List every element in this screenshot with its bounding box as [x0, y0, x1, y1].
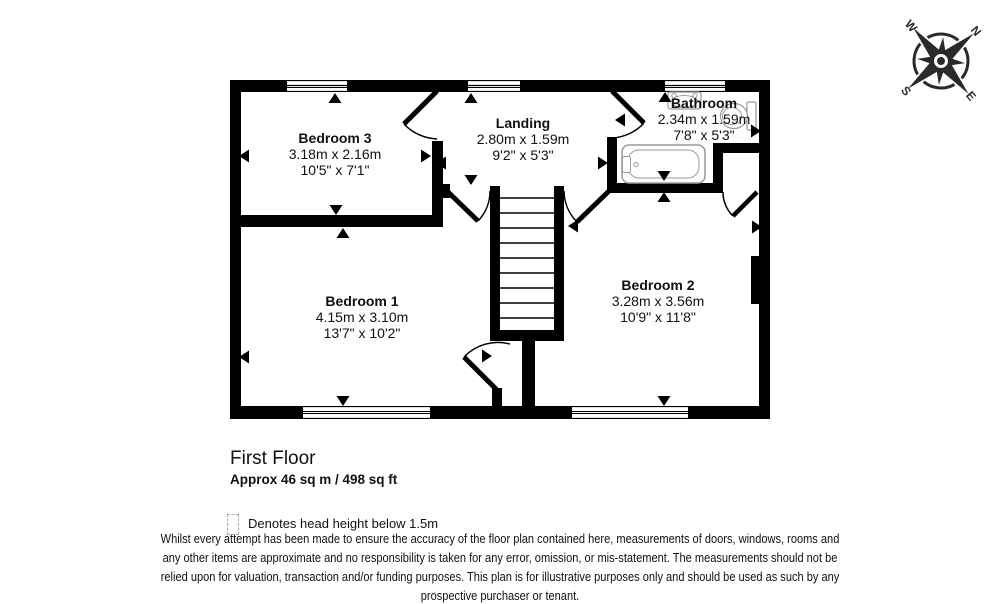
disclaimer: Whilst every attempt has been made to en…	[0, 529, 1000, 604]
room-dim-metric: 2.34m x 1.59m	[658, 111, 751, 127]
stairs-left-wall	[490, 186, 500, 341]
door-hinge-stub	[492, 388, 502, 406]
room-dim-imperial: 10'5" x 7'1"	[289, 162, 382, 178]
room-dim-metric: 2.80m x 1.59m	[477, 131, 570, 147]
floor-area: Approx 46 sq m / 498 sq ft	[230, 472, 397, 487]
measure-arrow-icon	[330, 205, 343, 215]
room-dim-imperial: 13'7" x 10'2"	[316, 325, 409, 341]
measure-arrow-icon	[329, 93, 342, 103]
bedroom3-bottom-wall	[230, 215, 443, 227]
door-bedroom2	[564, 191, 609, 222]
floor-title: First Floor	[230, 448, 316, 470]
measure-arrow-icon	[482, 350, 492, 363]
measure-arrow-icon	[658, 192, 671, 202]
door-bathroom	[612, 91, 644, 138]
room-label-bathroom: Bathroom 2.34m x 1.59m 7'8" x 5'3"	[658, 95, 751, 143]
window	[287, 80, 347, 92]
staircase-treads	[500, 198, 554, 318]
window	[572, 406, 688, 419]
measure-arrow-icon	[615, 114, 625, 127]
compass-south-label: S	[898, 83, 914, 98]
room-dim-metric: 3.18m x 2.16m	[289, 146, 382, 162]
measure-arrow-icon	[465, 175, 478, 185]
stairs-bottom-wall	[490, 330, 564, 341]
door-cupboard	[723, 192, 757, 216]
measure-arrow-icon	[658, 396, 671, 406]
room-name: Bedroom 3	[289, 130, 382, 146]
measure-arrow-icon	[421, 150, 431, 163]
room-label-bedroom2: Bedroom 2 3.28m x 3.56m 10'9" x 11'8"	[612, 277, 705, 325]
measure-arrow-icon	[568, 220, 578, 233]
disclaimer-line: any other items are approximate and no r…	[75, 548, 925, 567]
bathroom-left-wall	[607, 137, 617, 190]
room-name: Bedroom 1	[316, 293, 409, 309]
disclaimer-line: prospective purchaser or tenant.	[75, 586, 925, 604]
window	[665, 80, 725, 92]
measure-arrow-icon	[337, 396, 350, 406]
room-name: Bedroom 2	[612, 277, 705, 293]
measure-arrow-icon	[465, 93, 478, 103]
measure-arrow-icon	[598, 157, 608, 170]
stairs-right-wall	[554, 186, 564, 341]
door-bedroom3	[404, 91, 437, 139]
window	[303, 406, 430, 419]
room-dim-metric: 4.15m x 3.10m	[316, 309, 409, 325]
bedroom3-right-wall	[432, 141, 443, 227]
floor-plan-svg: N E S W	[0, 0, 1000, 604]
cupboard-left-wall	[713, 143, 723, 193]
room-dim-imperial: 7'8" x 5'3"	[658, 127, 751, 143]
door-bedroom1-bottom	[464, 342, 510, 390]
room-label-bedroom1: Bedroom 1 4.15m x 3.10m 13'7" x 10'2"	[316, 293, 409, 341]
room-dim-imperial: 10'9" x 11'8"	[612, 309, 705, 325]
disclaimer-line: relied upon for valuation, transaction a…	[75, 567, 925, 586]
room-label-bedroom3: Bedroom 3 3.18m x 2.16m 10'5" x 7'1"	[289, 130, 382, 178]
window	[468, 80, 520, 92]
bathroom-bottom-wall	[607, 183, 723, 193]
room-dim-imperial: 9'2" x 5'3"	[477, 147, 570, 163]
room-dim-metric: 3.28m x 3.56m	[612, 293, 705, 309]
room-label-landing: Landing 2.80m x 1.59m 9'2" x 5'3"	[477, 115, 570, 163]
floorplan-page: N E S W Bedroom 3 3.18m x 2.16m 10'5" x …	[0, 0, 1000, 604]
understairs-partition	[522, 341, 535, 406]
room-name: Bathroom	[658, 95, 751, 111]
disclaimer-line: Whilst every attempt has been made to en…	[75, 529, 925, 548]
room-name: Landing	[477, 115, 570, 131]
compass-rose: N E S W	[880, 0, 1000, 121]
door-bedroom1-top	[447, 191, 490, 221]
measure-arrow-icon	[337, 228, 350, 238]
wall-pier	[751, 256, 759, 304]
